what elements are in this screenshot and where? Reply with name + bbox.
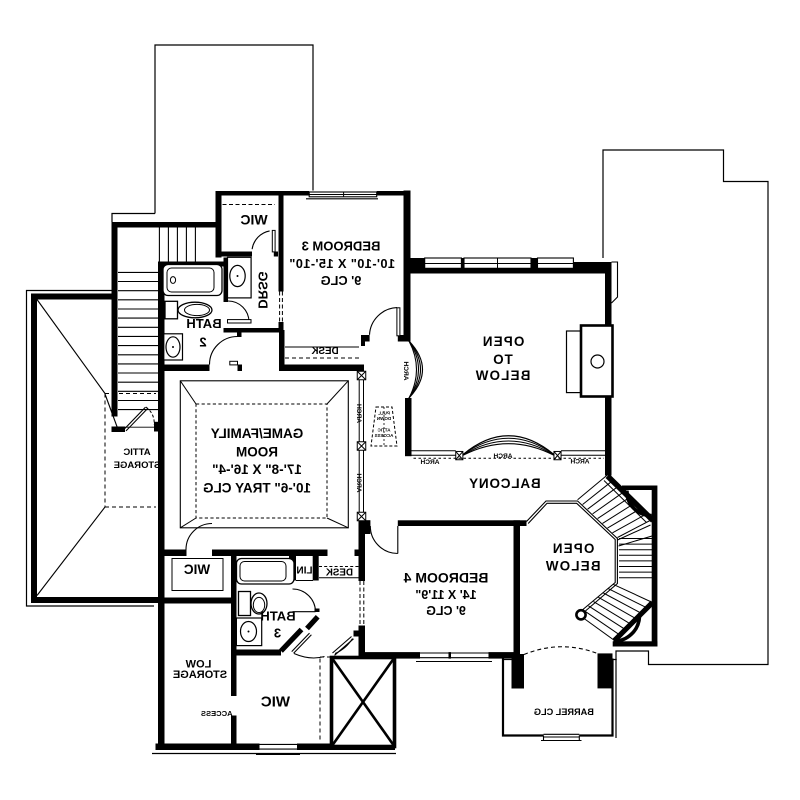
svg-text:2: 2 bbox=[199, 335, 206, 350]
svg-text:ARCH: ARCH bbox=[402, 361, 409, 380]
svg-text:STORAGE: STORAGE bbox=[114, 460, 161, 471]
svg-text:BELOW: BELOW bbox=[545, 558, 601, 573]
svg-text:ACCESS: ACCESS bbox=[375, 433, 394, 438]
svg-text:BATH: BATH bbox=[260, 609, 295, 624]
svg-text:ARCH: ARCH bbox=[493, 453, 512, 460]
svg-text:9' CLG: 9' CLG bbox=[321, 273, 362, 288]
svg-text:DESK: DESK bbox=[326, 568, 353, 579]
svg-text:DOWN: DOWN bbox=[377, 416, 391, 421]
svg-text:ARCH: ARCH bbox=[570, 459, 589, 466]
svg-text:TO: TO bbox=[492, 352, 513, 367]
svg-text:9' CLG: 9' CLG bbox=[426, 604, 466, 618]
svg-text:17'-8" X 16'-4": 17'-8" X 16'-4" bbox=[212, 462, 302, 477]
svg-text:LIN: LIN bbox=[296, 566, 312, 577]
svg-text:ROOM: ROOM bbox=[236, 444, 278, 459]
svg-text:OPEN: OPEN bbox=[552, 541, 595, 556]
svg-text:10'-6" TRAY CLG: 10'-6" TRAY CLG bbox=[203, 480, 311, 495]
svg-text:BEDROOM 3: BEDROOM 3 bbox=[302, 239, 381, 254]
svg-text:BARREL CLG: BARREL CLG bbox=[534, 707, 594, 717]
svg-text:DESK: DESK bbox=[311, 346, 338, 357]
svg-text:ARCH: ARCH bbox=[420, 459, 439, 466]
svg-text:OPEN: OPEN bbox=[482, 334, 525, 349]
svg-text:WIC: WIC bbox=[240, 212, 267, 228]
svg-text:BEDROOM 4: BEDROOM 4 bbox=[403, 569, 488, 585]
svg-text:ARCH: ARCH bbox=[355, 404, 362, 423]
svg-text:WIC: WIC bbox=[184, 562, 210, 577]
svg-text:WIC: WIC bbox=[261, 694, 290, 711]
svg-text:ARCH: ARCH bbox=[355, 473, 362, 492]
svg-text:ATTIC: ATTIC bbox=[123, 447, 150, 458]
svg-text:ATTIC: ATTIC bbox=[377, 428, 391, 433]
svg-text:ACCESS: ACCESS bbox=[201, 709, 233, 718]
svg-text:BALCONY: BALCONY bbox=[468, 476, 540, 491]
svg-text:3: 3 bbox=[274, 626, 281, 641]
svg-text:GAME/FAMILY: GAME/FAMILY bbox=[211, 426, 304, 441]
svg-text:BELOW: BELOW bbox=[474, 368, 530, 383]
svg-text:STORAGE: STORAGE bbox=[173, 669, 227, 681]
svg-text:10'-10" X 15'-10": 10'-10" X 15'-10" bbox=[289, 256, 395, 271]
svg-text:BATH: BATH bbox=[186, 316, 221, 331]
svg-text:DRSG: DRSG bbox=[255, 271, 270, 309]
svg-text:PULL: PULL bbox=[378, 411, 390, 416]
svg-text:14' X 11'9": 14' X 11'9" bbox=[415, 588, 476, 602]
